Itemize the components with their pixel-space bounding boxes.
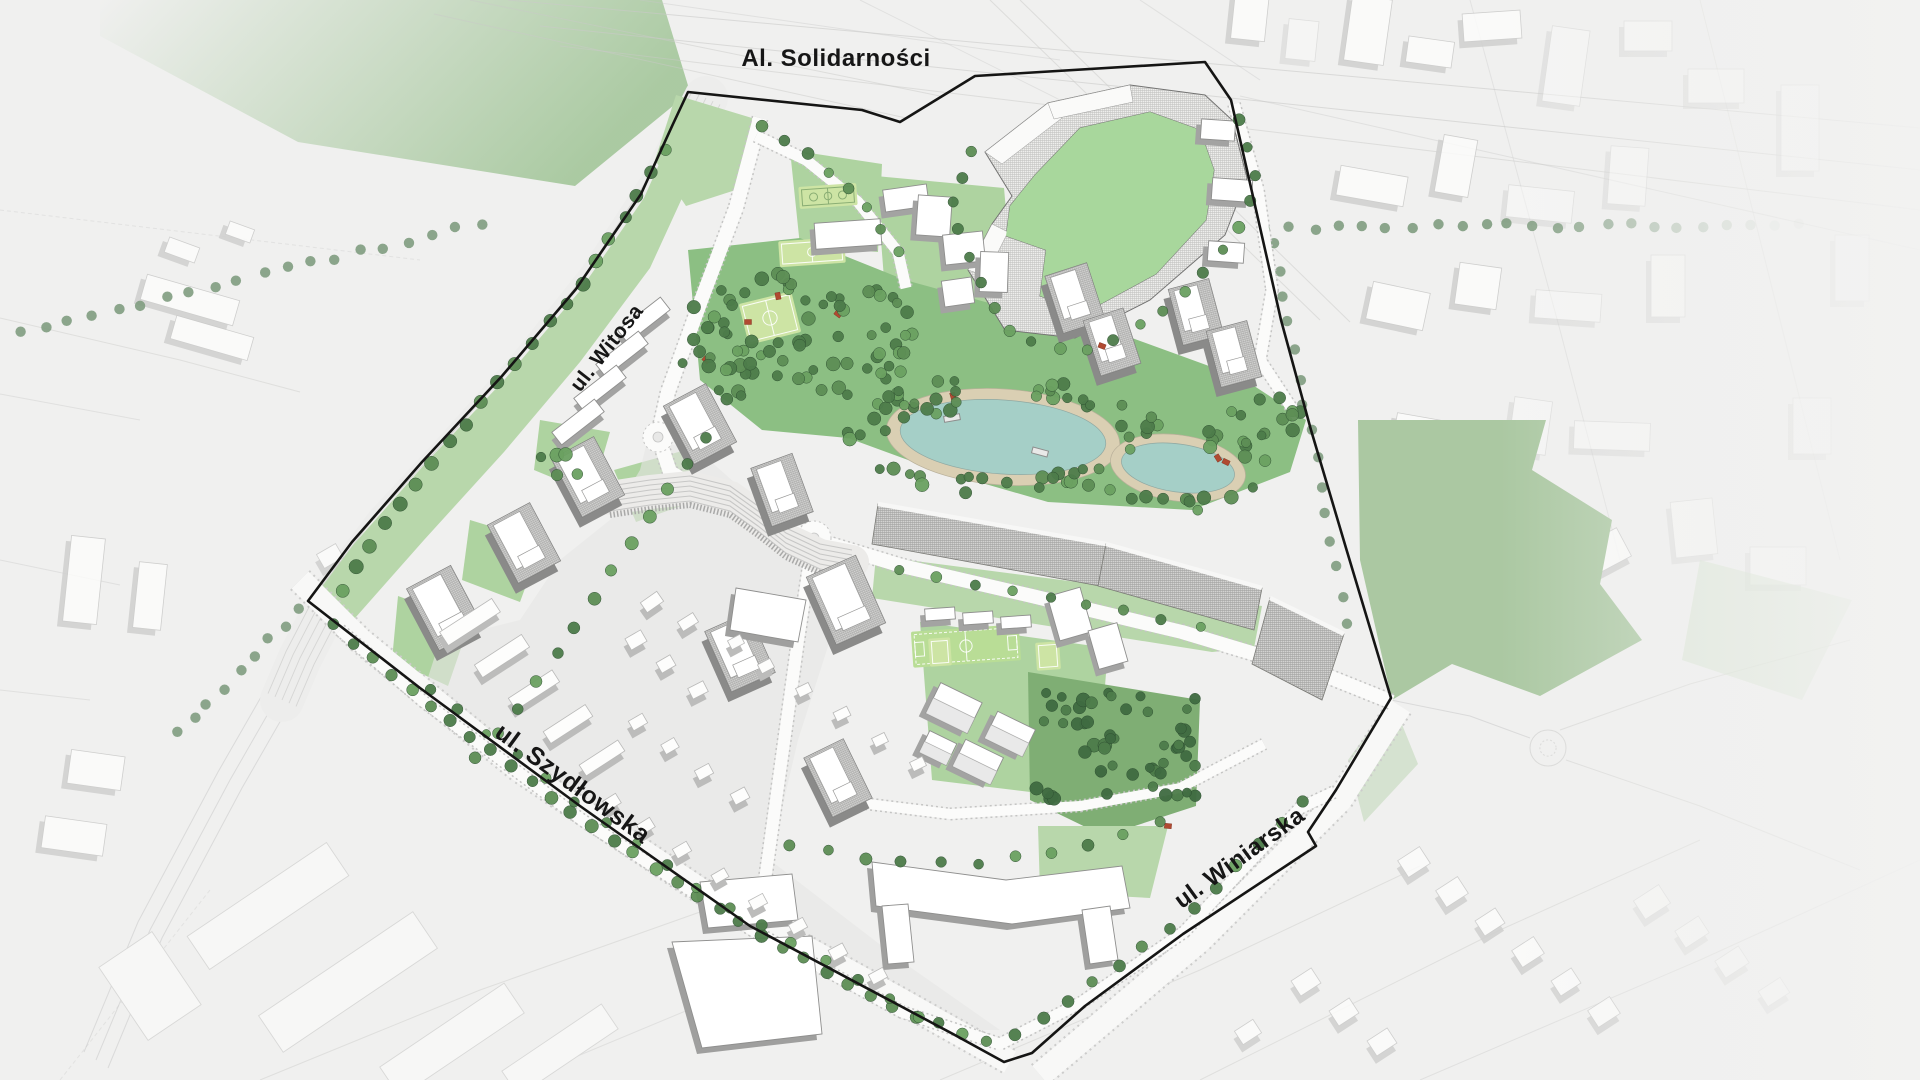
street-label-solidarnosci: Al. Solidarności: [741, 45, 930, 72]
sports-pitch: [928, 637, 952, 666]
map-canvas: [0, 0, 1920, 1080]
masterplan-map: Al. Solidarności ul. Witosa ul. Szydłows…: [0, 0, 1920, 1080]
white-building: [882, 904, 914, 964]
edge-fade: [1500, 0, 1920, 1080]
map-svg: Al. Solidarności ul. Witosa ul. Szydłows…: [0, 0, 1920, 1080]
